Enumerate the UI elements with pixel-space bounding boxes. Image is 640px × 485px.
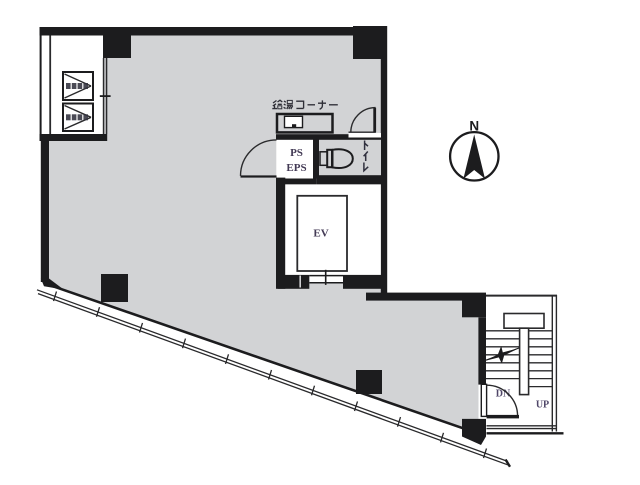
svg-text:UP: UP <box>536 400 549 411</box>
svg-text:EV: EV <box>313 228 328 240</box>
svg-text:PS: PS <box>290 147 303 159</box>
svg-text:N: N <box>469 119 479 134</box>
svg-text:EPS: EPS <box>286 162 306 174</box>
